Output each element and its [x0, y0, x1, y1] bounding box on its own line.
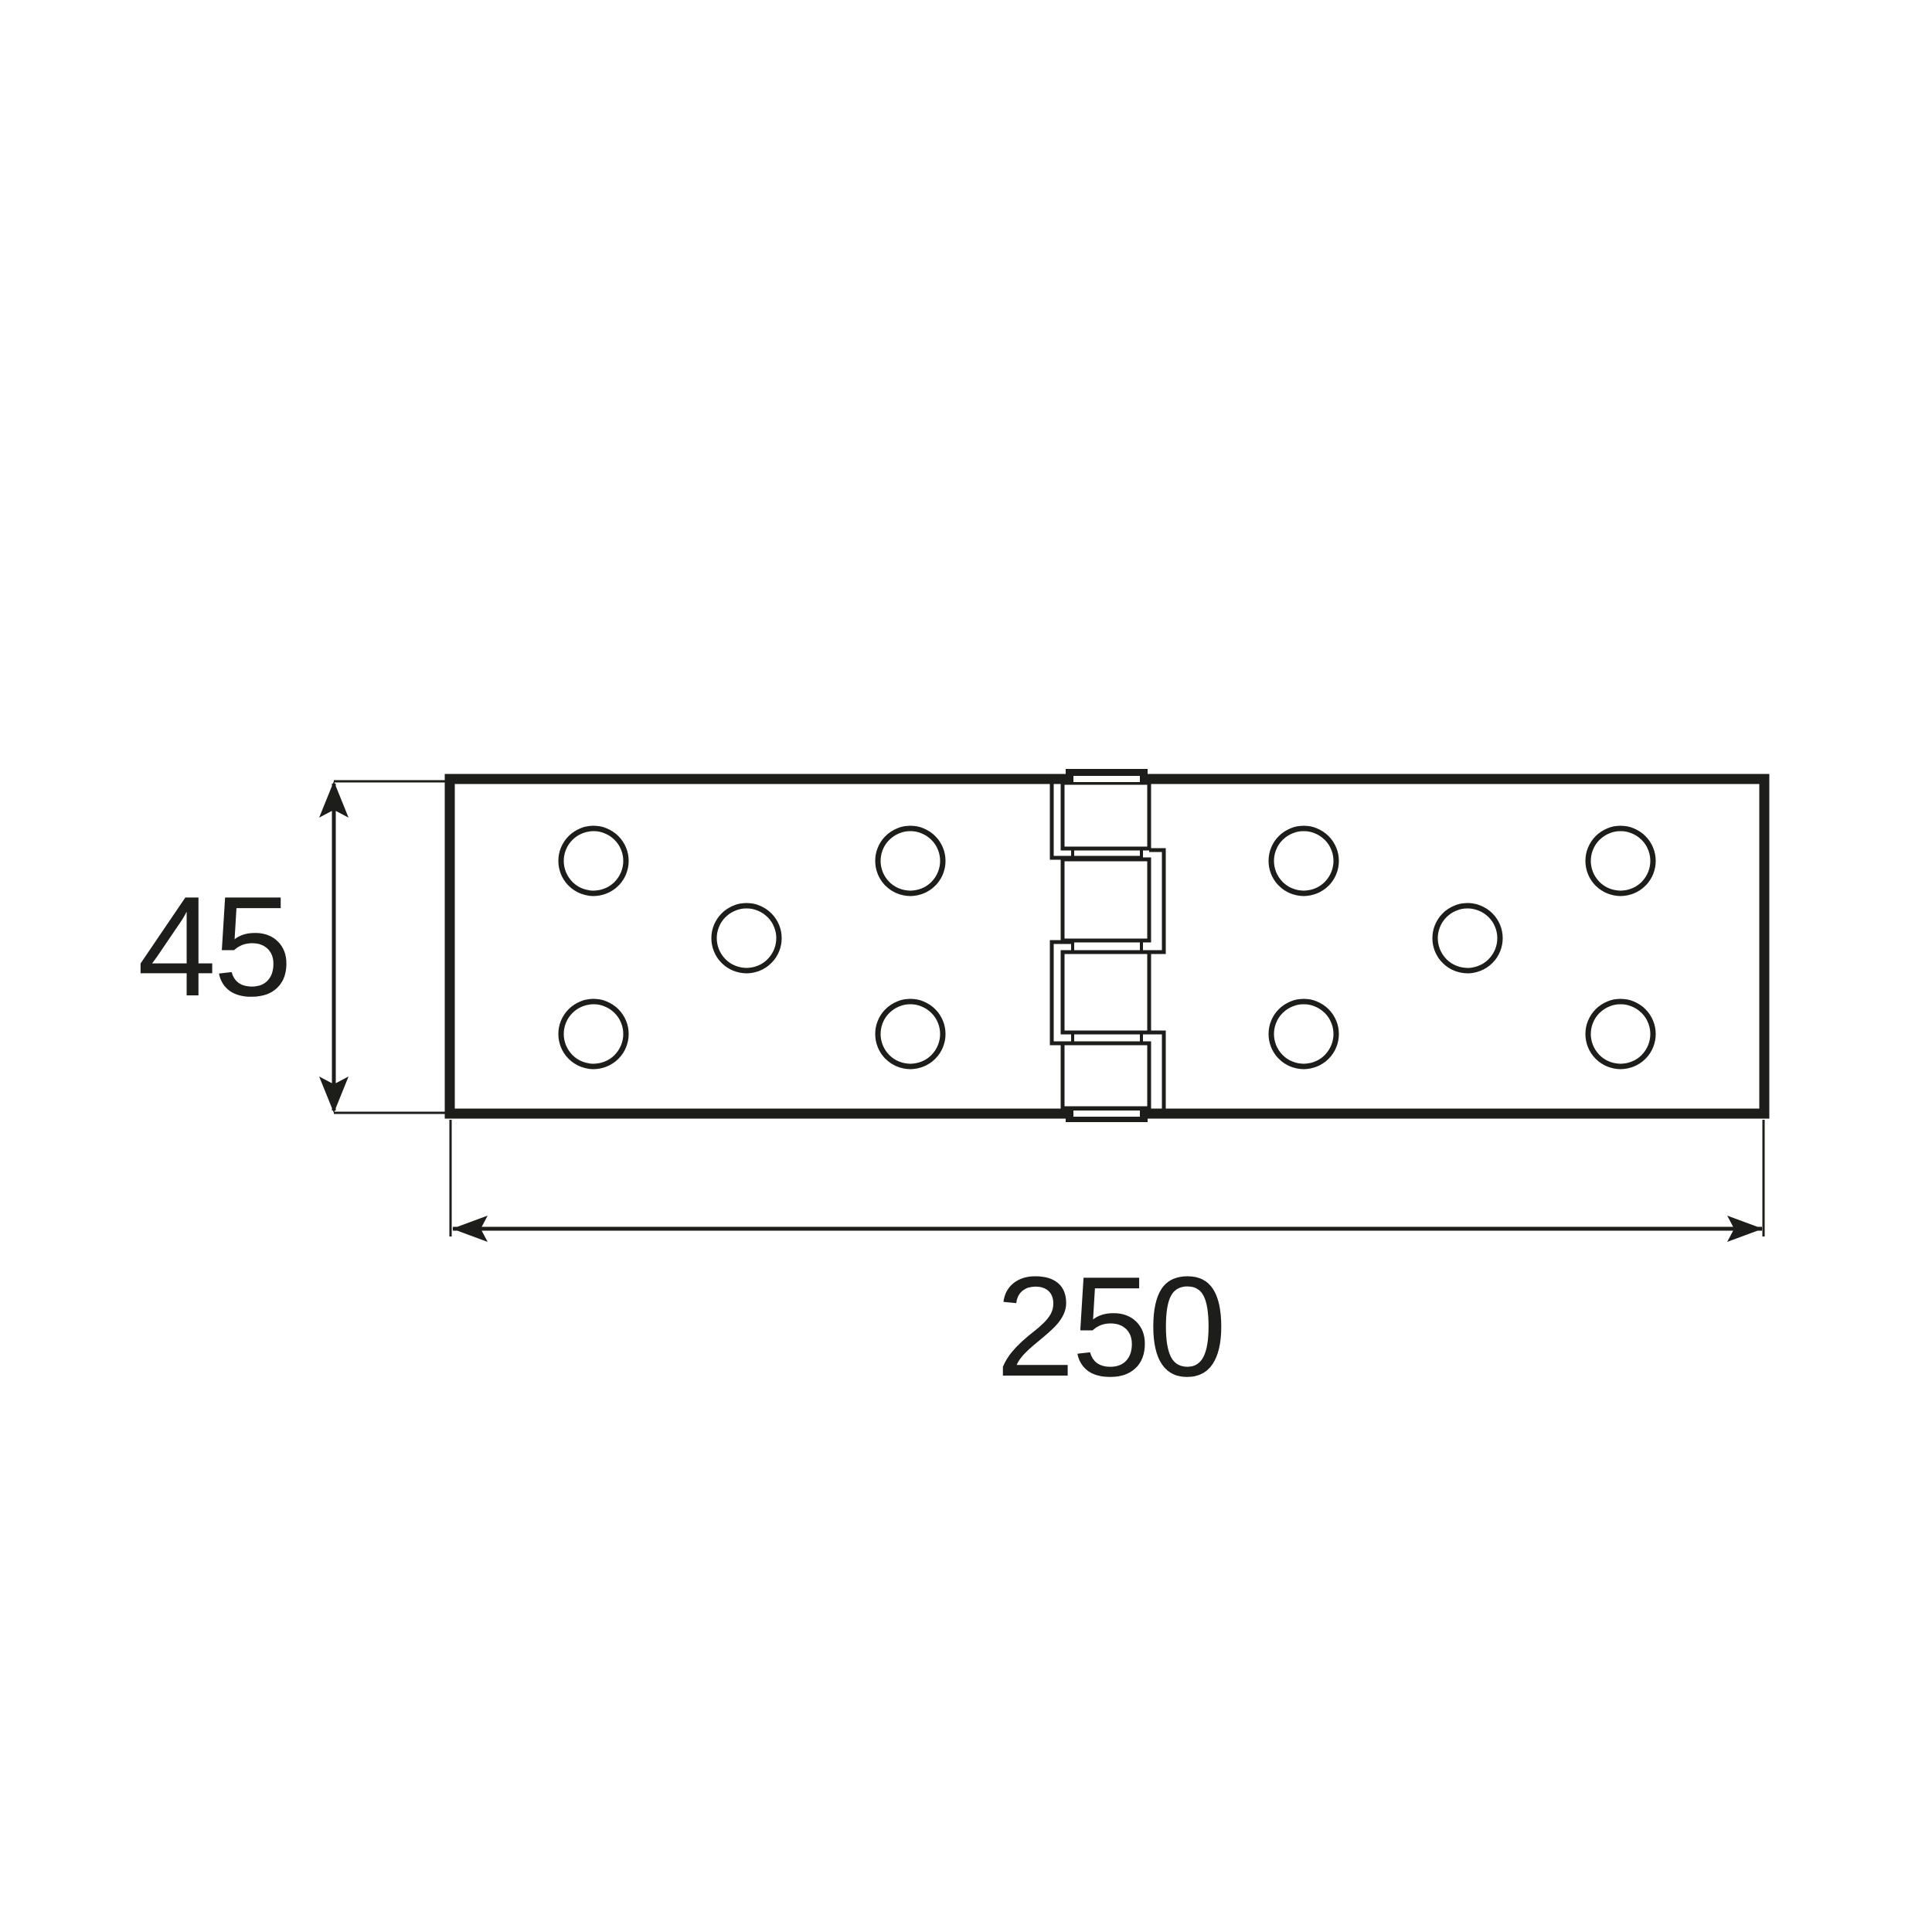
- screw-hole: [1271, 1002, 1336, 1066]
- knuckle-bottom-tab-slot: [1073, 1111, 1140, 1117]
- height-dimension: 45: [138, 781, 445, 1113]
- knuckle-top-tab: [1066, 769, 1148, 783]
- knuckle-bottom-tab: [1066, 1108, 1148, 1122]
- screw-hole: [1435, 906, 1500, 971]
- screw-hole: [1588, 828, 1653, 893]
- screw-hole: [878, 828, 943, 893]
- hinge-plates: [450, 774, 1764, 1118]
- screw-hole: [1271, 828, 1336, 893]
- width-dimension-label: 250: [996, 1247, 1224, 1406]
- knuckle-right-loop-upper: [1149, 850, 1164, 952]
- screw-hole: [878, 1002, 943, 1066]
- knuckle-top-tab-slot: [1073, 776, 1140, 782]
- knuckle-right-loop-lower: [1149, 1032, 1164, 1111]
- technical-drawing-canvas: 45 250: [0, 0, 1932, 1932]
- screw-hole: [561, 828, 626, 893]
- screw-hole: [1588, 1002, 1653, 1066]
- knuckle-border-gap: [1066, 774, 1148, 1118]
- screw-hole: [714, 906, 779, 971]
- width-dimension: 250: [451, 1120, 1764, 1406]
- hinge-dimension-drawing: 45 250: [0, 0, 1932, 1932]
- screw-hole: [561, 1002, 626, 1066]
- height-dimension-label: 45: [138, 866, 290, 1026]
